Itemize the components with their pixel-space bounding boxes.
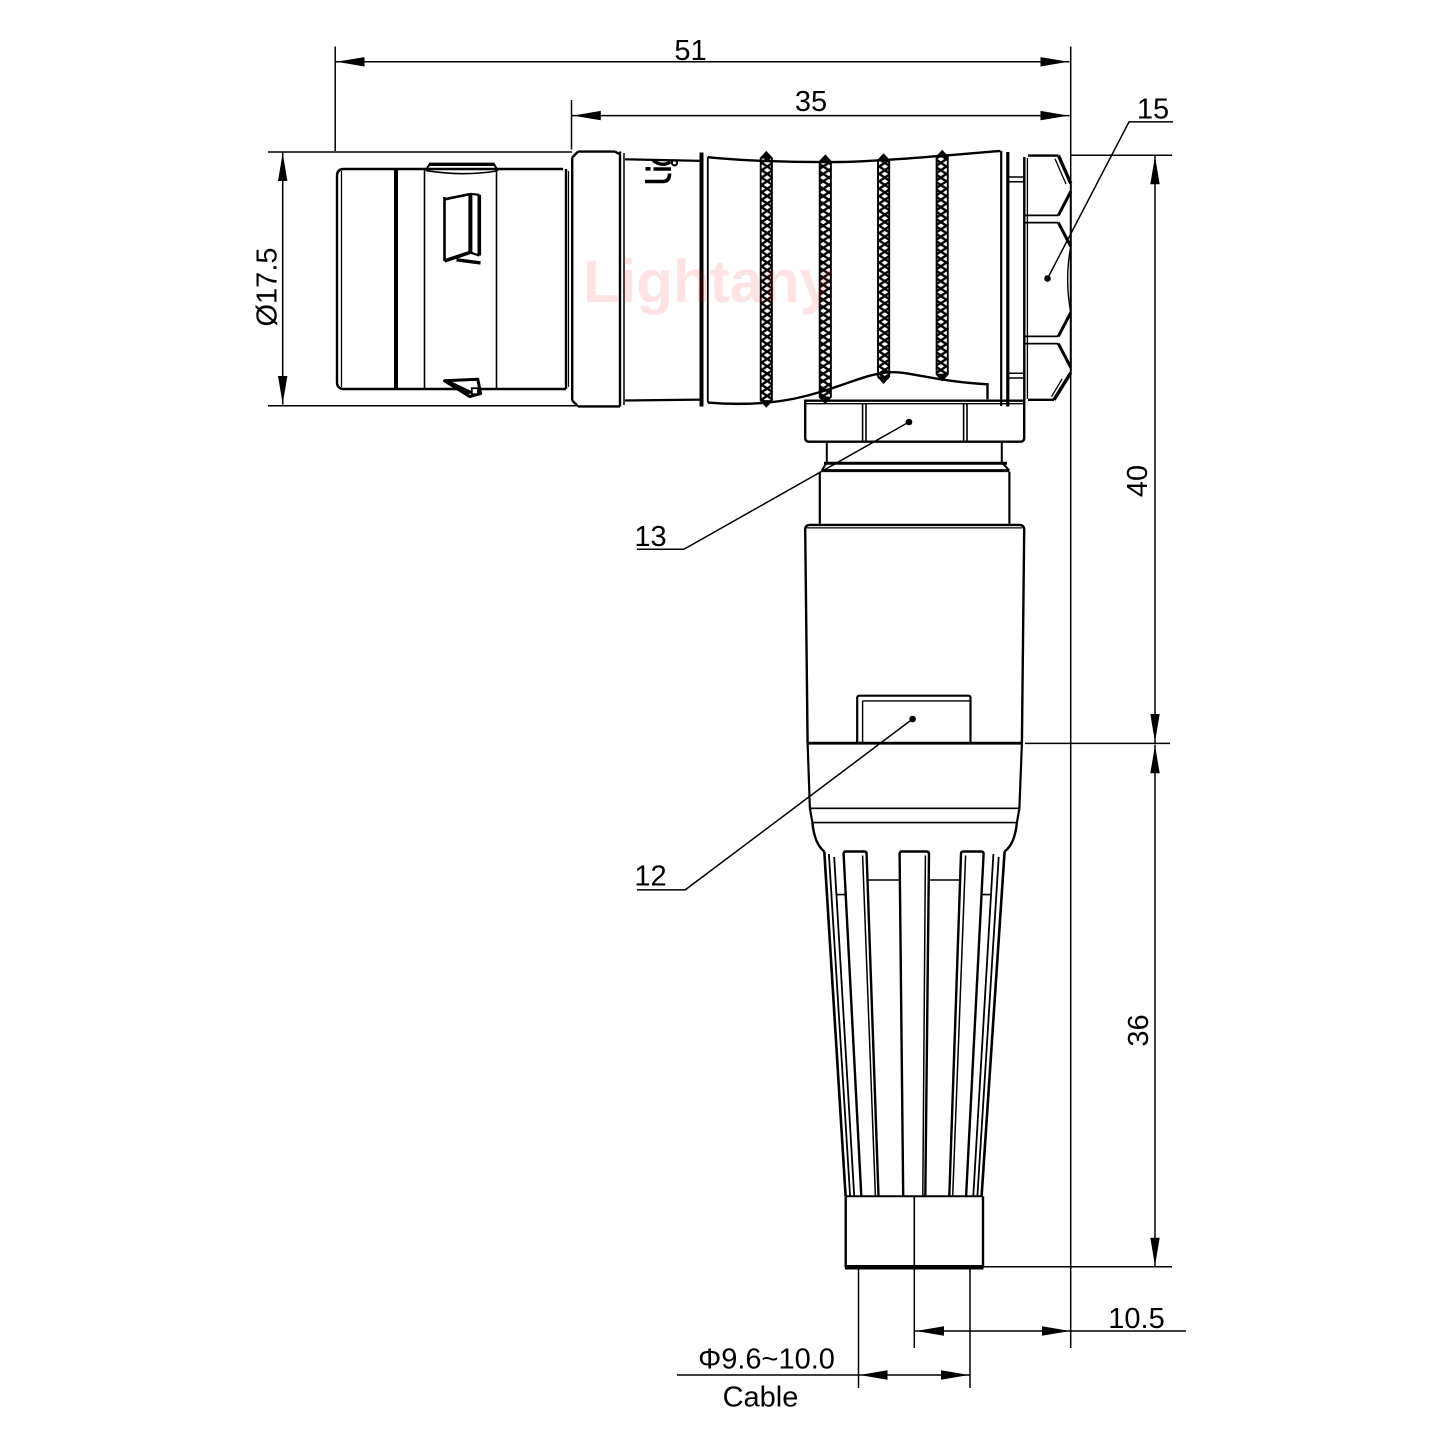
svg-text:Cable: Cable <box>723 1381 799 1413</box>
svg-text:36: 36 <box>1123 1014 1155 1046</box>
svg-text:35: 35 <box>795 86 827 118</box>
svg-text:10.5: 10.5 <box>1108 1303 1164 1335</box>
svg-text:15: 15 <box>1137 93 1169 125</box>
svg-text:Ø17.5: Ø17.5 <box>252 248 284 327</box>
svg-text:12: 12 <box>634 861 666 893</box>
svg-text:40: 40 <box>1122 465 1154 497</box>
svg-text:13: 13 <box>634 521 666 553</box>
svg-text:Lightany: Lightany <box>583 248 834 315</box>
svg-text:Φ9.6~10.0: Φ9.6~10.0 <box>698 1343 835 1375</box>
svg-text:51: 51 <box>674 35 706 67</box>
